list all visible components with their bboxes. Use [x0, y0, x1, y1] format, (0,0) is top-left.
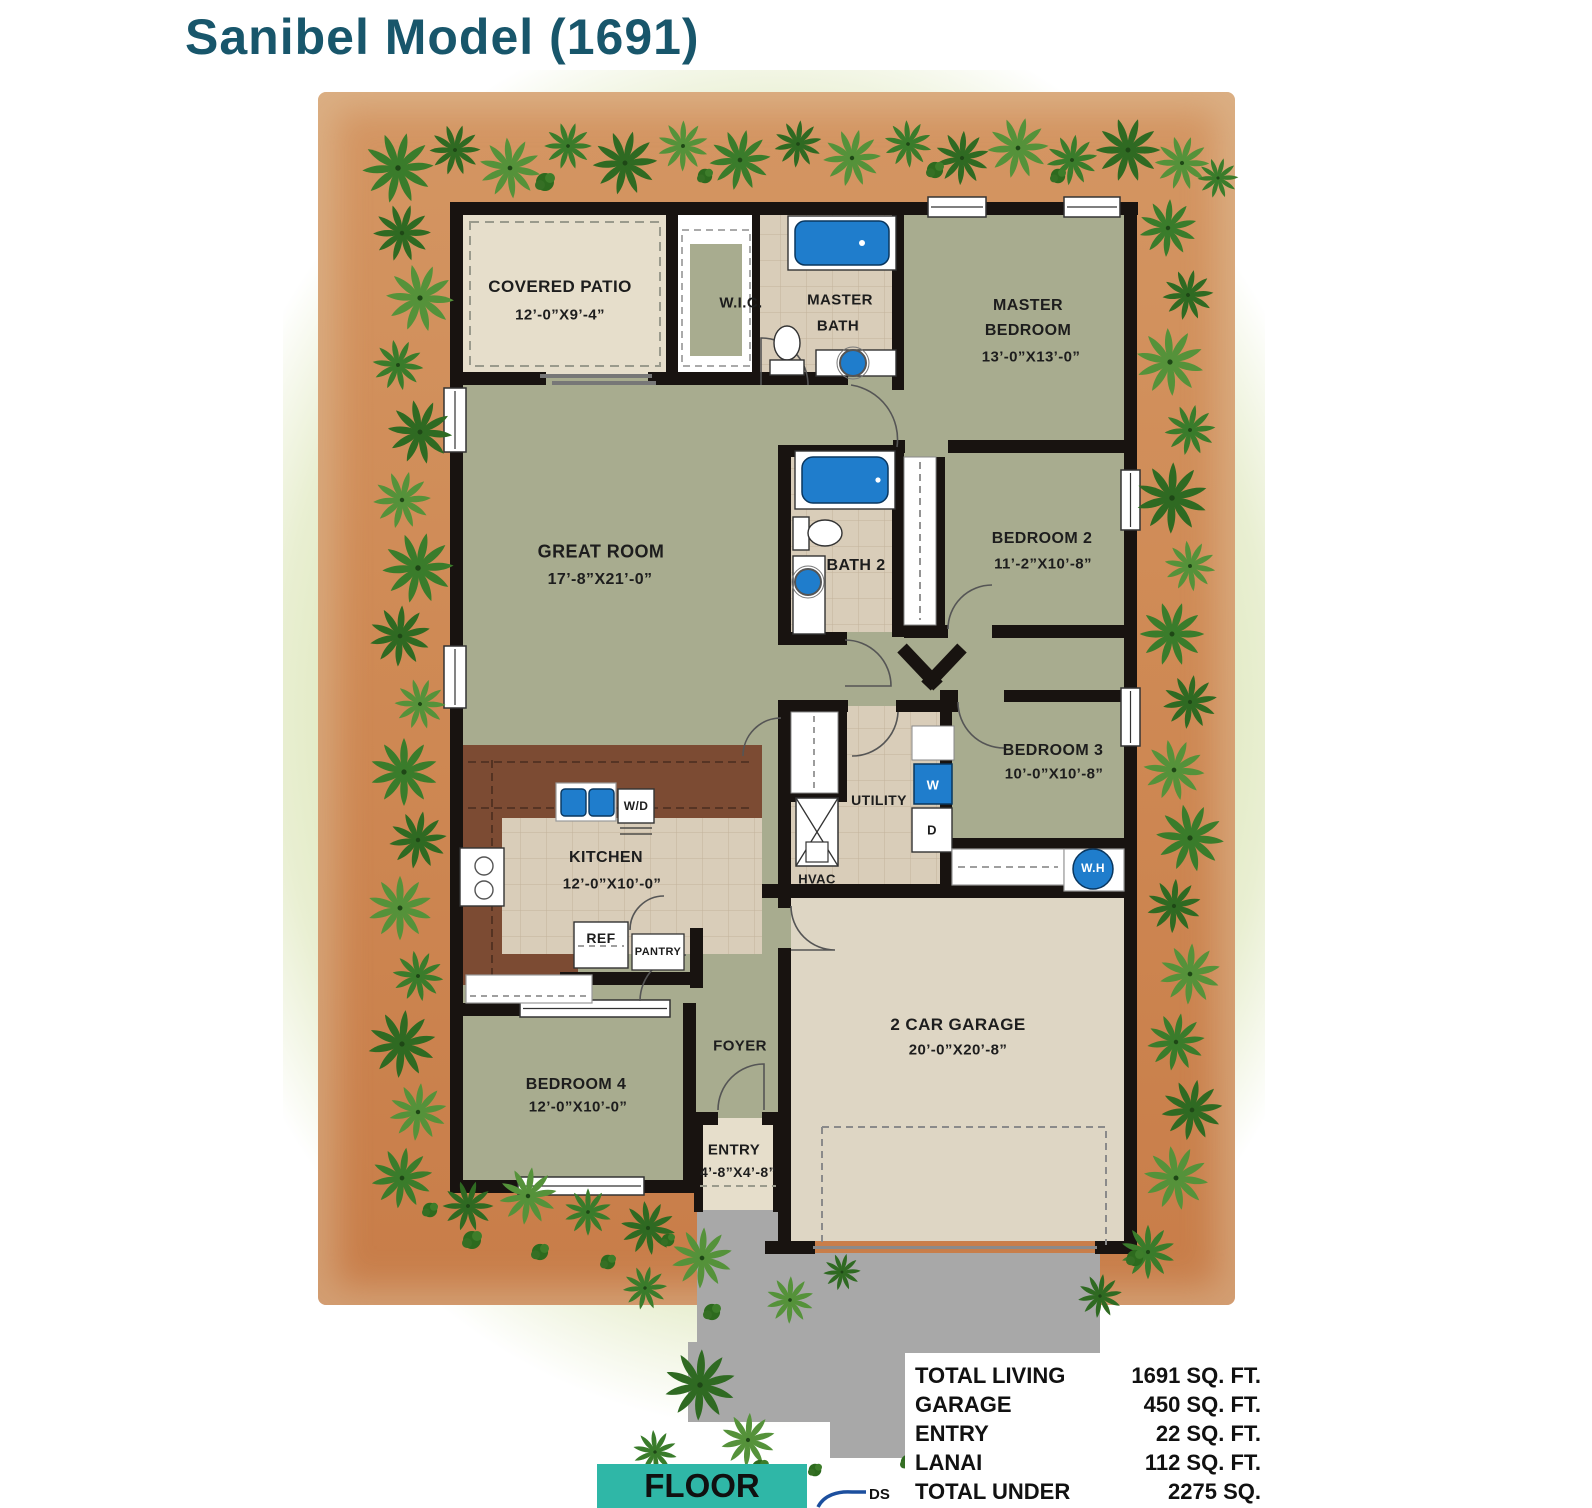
window-icon — [1064, 197, 1120, 217]
stove — [460, 848, 504, 906]
palm-tree-icon — [357, 1000, 446, 1089]
palm-tree-icon — [366, 197, 437, 269]
palm-tree-icon — [1083, 105, 1173, 194]
bedroom3-label: BEDROOM 3 — [1003, 742, 1104, 760]
entry-walkway — [697, 1205, 778, 1355]
bush-icon — [926, 162, 944, 178]
bath2-tub — [795, 451, 895, 509]
sliding-door — [540, 374, 652, 378]
palm-tree-icon — [1152, 664, 1228, 740]
table-row: TOTAL LIVING 1691 SQ. FT. — [905, 1361, 1271, 1390]
wall-segment — [945, 838, 1137, 849]
garage-dims: 20’-0”X20’-8” — [909, 1042, 1008, 1059]
row-value: 450 SQ. FT. — [1144, 1391, 1261, 1418]
palm-tree-icon — [927, 123, 998, 193]
downspout-label: DS — [869, 1486, 890, 1503]
palm-tree-icon — [615, 1258, 675, 1318]
wall-segment — [450, 202, 1138, 215]
wall-segment — [948, 440, 1137, 453]
wall-segment — [992, 625, 1137, 638]
table-row: ENTRY 22 SQ. FT. — [905, 1419, 1271, 1448]
palm-tree-icon — [765, 111, 832, 178]
palm-tree-icon — [1153, 801, 1228, 875]
wall-segment — [765, 1241, 815, 1254]
master-bath-vanity-sink — [816, 347, 896, 379]
palm-tree-icon — [657, 120, 708, 172]
bush-icon — [1050, 169, 1066, 183]
sliding-door — [552, 381, 656, 385]
palm-tree-icon — [1144, 125, 1220, 201]
palm-tree-icon — [1192, 152, 1244, 204]
floor-plan-page: Sanibel Model (1691) — [0, 0, 1592, 1508]
window-icon — [1121, 688, 1140, 746]
window-seat — [466, 975, 592, 1003]
covered-patio-dims: 12’-0”X9’-4” — [515, 307, 605, 324]
row-label: LANAI — [915, 1449, 982, 1476]
palm-tree-icon — [1127, 589, 1217, 678]
bush-icon — [808, 1464, 822, 1477]
palm-tree-icon — [1145, 877, 1202, 935]
palm-tree-icon — [420, 115, 491, 185]
palm-tree-icon — [348, 118, 448, 218]
palm-tree-icon — [1131, 1133, 1222, 1224]
area-summary-table: TOTAL LIVING 1691 SQ. FT. GARAGE 450 SQ.… — [905, 1353, 1271, 1508]
bedroom3-dims: 10’-0”X10’-8” — [1005, 766, 1104, 783]
palm-tree-icon — [1129, 321, 1211, 402]
palm-tree-icon — [371, 470, 433, 531]
floor-plan-drawing — [0, 0, 1592, 1508]
bush-icon — [422, 1203, 438, 1217]
dryer-label: D — [927, 823, 937, 838]
great-room-label: GREAT ROOM — [538, 542, 665, 563]
bedroom4-dims: 12’-0”X10’-0” — [529, 1099, 628, 1116]
palm-tree-icon — [360, 597, 439, 676]
bedroom4-label: BEDROOM 4 — [526, 1076, 627, 1094]
table-row: LANAI 112 SQ. FT. — [905, 1448, 1271, 1477]
water-heater-label: W.H — [1081, 861, 1105, 875]
bush-icon — [531, 1244, 549, 1260]
palm-tree-icon — [535, 113, 601, 179]
wall-segment — [683, 1003, 696, 1193]
wall-segment — [778, 445, 791, 645]
palm-tree-icon — [812, 119, 891, 198]
window-icon — [444, 646, 466, 708]
master-bath-label-line2: BATH — [817, 318, 859, 335]
row-value: 22 SQ. FT. — [1156, 1420, 1261, 1447]
palm-tree-icon — [591, 129, 660, 197]
entry-dims: 4’-8”X4’-8” — [700, 1164, 776, 1180]
row-label: GARAGE — [915, 1391, 1012, 1418]
palm-tree-icon — [379, 257, 460, 339]
bush-icon — [462, 1231, 482, 1249]
wall-segment — [666, 202, 678, 378]
hvac-unit — [796, 798, 838, 866]
wall-segment — [1004, 690, 1137, 702]
table-row: GARAGE 450 SQ. FT. — [905, 1390, 1271, 1419]
palm-tree-icon — [357, 725, 451, 819]
covered-patio-label: COVERED PATIO — [488, 277, 631, 297]
kitchen-label: KITCHEN — [569, 849, 643, 867]
palm-tree-icon — [1155, 395, 1224, 464]
bush-icon — [535, 173, 555, 191]
palm-tree-icon — [1128, 188, 1209, 269]
pantry-label: PANTRY — [635, 946, 681, 958]
bush-icon — [600, 1255, 616, 1269]
dishwasher-label: W/D — [624, 799, 649, 813]
bedroom2-closet — [904, 457, 936, 625]
master-bath-tub — [788, 216, 896, 270]
palm-tree-icon — [384, 942, 452, 1010]
master-bedroom-label-line2: BEDROOM — [985, 322, 1071, 340]
bath2-label: BATH 2 — [827, 557, 886, 575]
row-value: 1691 SQ. FT. — [1131, 1362, 1261, 1389]
palm-tree-icon — [1131, 727, 1217, 813]
palm-tree-icon — [1149, 1067, 1235, 1153]
utility-shelf — [912, 726, 954, 760]
bush-icon — [697, 169, 713, 183]
palm-tree-icon — [1136, 461, 1209, 535]
palm-tree-icon — [1162, 537, 1219, 594]
palm-tree-icon — [380, 802, 457, 879]
hvac-label: HVAC — [798, 872, 835, 887]
refrigerator-label: REF — [586, 930, 615, 946]
wall-segment — [904, 625, 948, 638]
great-room-dims: 17’-8”X21’-0” — [548, 571, 653, 589]
wall-segment — [778, 700, 791, 896]
row-label: TOTAL LIVING — [915, 1362, 1065, 1389]
palm-tree-icon — [355, 863, 444, 953]
row-value: 2275 SQ. FT. — [1134, 1478, 1261, 1508]
kitchen-dims: 12’-0”X10’-0” — [563, 876, 662, 893]
palm-tree-icon — [1148, 932, 1232, 1016]
linen-closet — [791, 712, 838, 793]
master-bedroom-dims: 13’-0”X13’-0” — [982, 349, 1081, 366]
bedroom2-label: BEDROOM 2 — [992, 530, 1093, 548]
palm-tree-icon — [1143, 1010, 1208, 1074]
downspout-line — [818, 1492, 866, 1507]
master-bedroom-label-line1: MASTER — [993, 297, 1063, 315]
wall-segment — [838, 712, 847, 796]
garage-window-bench — [952, 849, 1064, 885]
palm-tree-icon — [470, 128, 550, 208]
palm-tree-icon — [617, 1197, 680, 1259]
wall-segment — [450, 372, 546, 385]
master-bath-label-line1: MASTER — [807, 292, 873, 309]
palm-tree-icon — [368, 335, 427, 395]
wall-segment — [896, 700, 958, 712]
floor-plan-badge: FLOOR PLAN — [597, 1464, 807, 1508]
kitchen-sink — [556, 783, 616, 821]
garage-label: 2 CAR GARAGE — [890, 1015, 1025, 1035]
bedroom2-dims: 11’-2”X10’-8” — [994, 556, 1092, 573]
row-label: TOTAL UNDER ROOF — [915, 1478, 1134, 1508]
utility-label: UTILITY — [851, 792, 907, 808]
entry-label: ENTRY — [708, 1142, 760, 1159]
palm-tree-icon — [975, 105, 1061, 191]
wic-label: W.I.C. — [719, 295, 762, 312]
window-icon — [1121, 470, 1140, 530]
wall-segment — [936, 457, 945, 625]
palm-tree-icon — [384, 1078, 452, 1146]
bath2-vanity-sink — [792, 556, 825, 634]
window-icon — [444, 388, 466, 452]
washer-label: W — [927, 778, 940, 793]
table-row: TOTAL UNDER ROOF 2275 SQ. FT. — [905, 1477, 1271, 1508]
foyer-label: FOYER — [713, 1038, 767, 1055]
garage-floor — [791, 898, 1124, 1241]
palm-tree-icon — [698, 119, 781, 202]
garage-door-opening-line — [813, 1246, 1097, 1249]
window-icon — [928, 197, 986, 217]
row-value: 112 SQ. FT. — [1145, 1449, 1261, 1476]
wall-segment — [778, 898, 791, 908]
palm-tree-icon — [1152, 259, 1223, 330]
bush-icon — [661, 1234, 675, 1247]
row-label: ENTRY — [915, 1420, 989, 1447]
palm-tree-icon — [1038, 126, 1106, 194]
wall-segment — [773, 1112, 782, 1212]
